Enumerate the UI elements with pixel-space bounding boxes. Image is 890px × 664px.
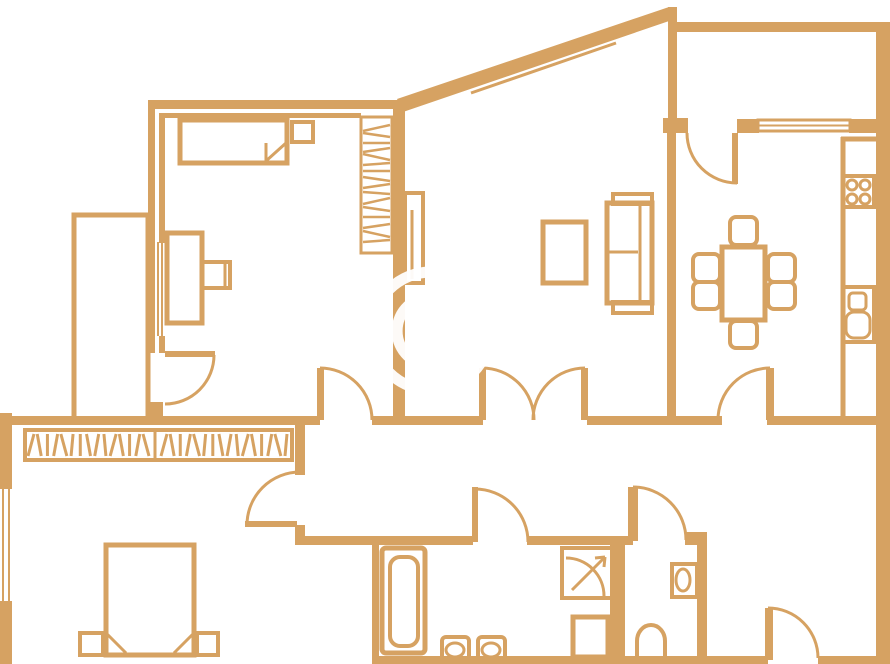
watermark-circle: [372, 272, 490, 390]
toilet-bowl: [676, 569, 690, 591]
kitchen-door-leaf: [766, 368, 774, 420]
bedroom1-door-leaf: [317, 368, 324, 420]
bathtub-inner: [390, 557, 418, 646]
bottom-exterior-wall-2: [818, 656, 890, 664]
living-double-door-leaf-left: [479, 368, 486, 420]
closet-door-leaf: [165, 351, 215, 357]
right-exterior-wall: [876, 22, 890, 664]
kitchen-top-wall-right: [849, 119, 877, 133]
dining-chair-right-1: [768, 254, 795, 282]
bedroom1-door-swing: [320, 368, 372, 420]
bedroom2-bed: [106, 545, 194, 655]
washbasin-2-bowl: [482, 643, 500, 657]
bedroom2-bed-fold-right: [174, 634, 193, 653]
closet-door-swing: [165, 355, 214, 404]
wc-door-leaf: [628, 487, 638, 541]
bedroom1-left-wall-inner: [159, 113, 165, 243]
dining-chair-left-1: [693, 254, 720, 282]
bookshelf-books-right: [161, 434, 287, 456]
balcony-left-wall: [668, 7, 677, 133]
balcony-top-wall: [669, 22, 877, 32]
living-double-door-leaf-right: [581, 368, 588, 420]
bedroom1-left-wall-inner-low: [159, 336, 165, 353]
wardrobe-hangers-hatch: [363, 125, 390, 242]
bedroom1-top-wall-outer: [148, 100, 406, 109]
hall-bottom-wall-1: [295, 536, 473, 545]
apartment-floor-plan: [0, 0, 890, 664]
corridor-wall-right: [587, 416, 722, 425]
dining-chair-right-2: [768, 282, 795, 309]
balcony-door-swing: [687, 133, 737, 183]
dining-chair-left-2: [693, 282, 720, 309]
kitchen-sink-basin-large: [846, 312, 870, 338]
living-double-door-swing-left: [482, 368, 534, 420]
kitchen-top-wall-stub: [663, 118, 688, 133]
corridor-wall-mid: [372, 416, 483, 425]
dining-chair-bottom: [730, 321, 757, 348]
bathroom-left-wall: [372, 543, 379, 664]
shower-arrow-head-2: [604, 557, 605, 567]
corridor-wall-east: [767, 416, 882, 425]
bedroom2-nightstand-right: [197, 633, 218, 655]
kitchen-living-divider-wall: [667, 133, 676, 425]
stove-burner-4: [860, 194, 870, 204]
bedroom1-top-wall-inner: [160, 113, 361, 118]
kitchen-top-wall-mid: [737, 119, 759, 133]
sofa-armrest-bottom: [613, 302, 652, 313]
stove-burner-1: [847, 180, 857, 190]
kitchen-sink-basin-small: [849, 293, 866, 310]
bedroom2-door-leaf: [245, 521, 297, 527]
bathroom-door-leaf: [472, 487, 478, 542]
bedroom2-door-swing: [247, 472, 300, 525]
stove-burner-3: [847, 194, 857, 204]
bedroom2-window-gap: [0, 489, 12, 601]
diagonal-exterior-wall: [397, 7, 675, 112]
diagonal-window-line-1: [467, 35, 612, 85]
entrance-door-swing: [768, 608, 818, 658]
washbasin-1-bowl: [446, 643, 464, 657]
stove-burner-2: [860, 180, 870, 190]
entrance-door-leaf: [765, 608, 773, 660]
tv-stand: [543, 222, 586, 283]
bookshelf-books-left: [28, 434, 149, 456]
kitchen-door-swing: [718, 368, 770, 420]
bedroom2-nightstand-left: [80, 633, 103, 655]
corridor-wall-left: [0, 416, 320, 425]
dining-chair-top: [730, 217, 757, 245]
closet-room-outline: [74, 215, 148, 422]
dining-table: [722, 247, 765, 320]
watermark-letter-c: [397, 297, 457, 365]
bedroom2-bed-fold-left: [107, 634, 126, 653]
bottom-exterior-wall-1: [372, 656, 768, 664]
balcony-door-leaf: [732, 133, 738, 184]
sofa-armrest-top: [613, 194, 652, 204]
bedroom1-bed-fold-diag: [266, 143, 286, 161]
bedroom1-nightstand: [292, 122, 313, 142]
washing-machine: [573, 617, 608, 657]
bathroom-door-swing: [475, 489, 528, 542]
living-double-door-swing-right: [533, 368, 585, 420]
floor-plan-canvas: [0, 0, 890, 664]
bidet: [637, 625, 665, 661]
bedroom1-desk: [167, 233, 202, 323]
wc-door-swing: [633, 487, 686, 540]
bedroom2-right-wall-upper: [295, 425, 305, 475]
shower-arrow-diag: [572, 557, 605, 590]
wc-right-wall: [697, 543, 707, 664]
